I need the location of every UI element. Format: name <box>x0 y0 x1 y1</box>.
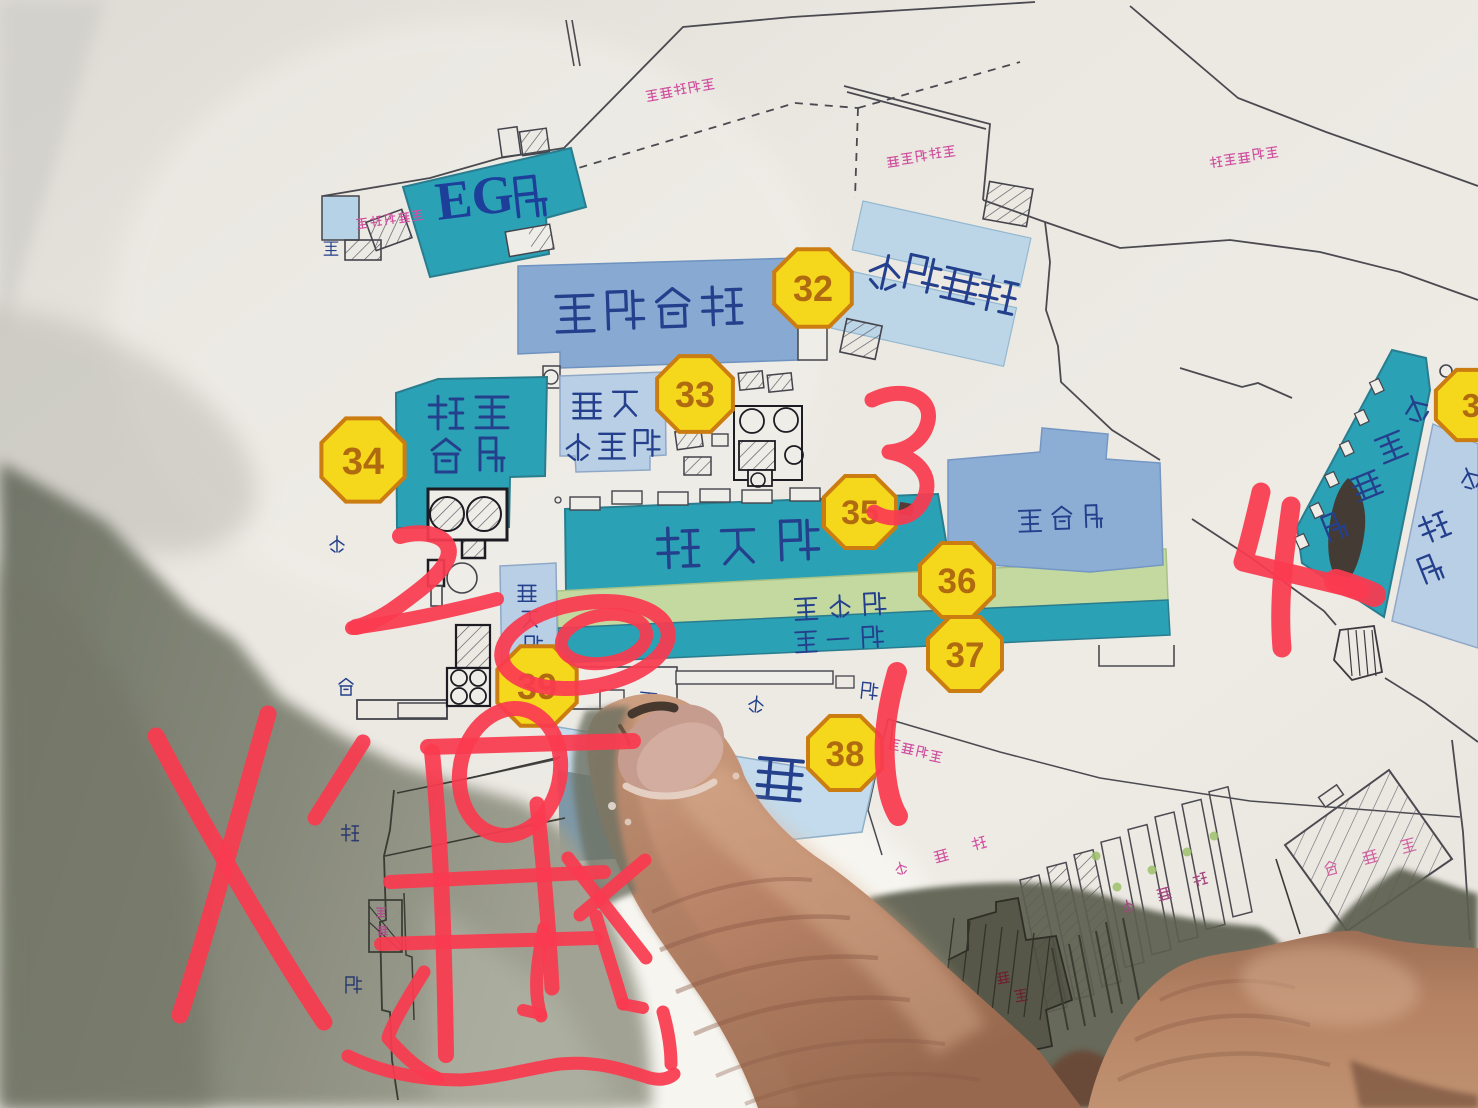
svg-text:34: 34 <box>342 441 384 483</box>
svg-text:37: 37 <box>946 636 985 675</box>
svg-text:3: 3 <box>1462 387 1478 424</box>
svg-text:38: 38 <box>826 735 865 774</box>
svg-text:36: 36 <box>938 562 977 601</box>
svg-text:32: 32 <box>793 268 833 309</box>
svg-text:33: 33 <box>675 374 715 415</box>
svg-text:EG: EG <box>432 163 517 232</box>
